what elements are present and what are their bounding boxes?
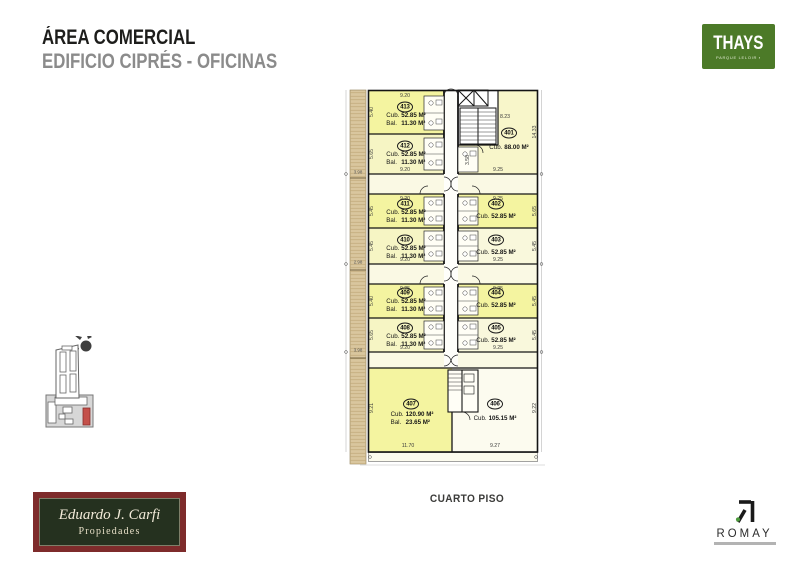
unit-412-height-dim: 5.65 [369, 149, 375, 159]
unit-409-width-dim: 9.25 [400, 286, 410, 292]
unit-404-height-dim: 5.45 [532, 296, 538, 306]
unit-412-number: 412 [397, 141, 413, 152]
unit-401-width-dim2: 9.25 [493, 167, 503, 173]
flyer-canvas: ÁREA COMERCIAL EDIFICIO CIPRÉS - OFICINA… [0, 0, 800, 566]
plan-extra-dim-0: 3.58 [465, 155, 471, 165]
unit-406-height-dim: 9.22 [532, 403, 538, 413]
unit-401-areas: Cub.88.00 M² [489, 144, 528, 152]
romay-r-icon [731, 497, 759, 525]
unit-408-width-dim: 9.20 [400, 345, 410, 351]
romay-logo-name: ROMAY [717, 526, 773, 540]
unit-411-width-dim: 9.20 [400, 196, 410, 202]
unit-403-width-dim: 9.25 [493, 257, 503, 263]
unit-406-number: 406 [487, 399, 503, 410]
cipres-building-highlight [83, 408, 90, 425]
unit-407-height-dim: 9.21 [369, 403, 375, 413]
romay-logo-tagline-bar [714, 542, 776, 545]
romay-logo: ROMAY [703, 497, 787, 545]
unit-409-height-dim: 5.40 [369, 296, 375, 306]
unit-405-width-dim: 9.25 [493, 345, 503, 351]
carfi-logo-subtitle: Propiedades [78, 526, 140, 537]
carfi-logo: Eduardo J. Carfi Propiedades [33, 492, 186, 552]
floor-plan-drawing [0, 0, 800, 566]
unit-401-height-dim: 14.33 [532, 126, 538, 139]
floor-label: CUARTO PISO [430, 493, 504, 505]
unit-409-areas: Cub.52.85 M²Bal.11.30 M² [386, 298, 425, 313]
unit-412-areas: Cub.52.85 M²Bal.11.30 M² [386, 151, 425, 166]
unit-406-width-dim: 9.27 [490, 443, 500, 449]
unit-408-height-dim: 5.65 [369, 330, 375, 340]
unit-408-number: 408 [397, 323, 413, 334]
unit-406-areas: Cub.105.15 M² [474, 415, 517, 423]
plan-extra-dim-2: 2.98 [354, 260, 363, 265]
unit-405-height-dim: 5.45 [532, 330, 538, 340]
unit-402-areas: Cub.52.85 M² [476, 213, 515, 221]
unit-410-height-dim: 5.45 [369, 241, 375, 251]
unit-404-areas: Cub.52.85 M² [476, 302, 515, 310]
carfi-logo-name: Eduardo J. Carfi [59, 507, 161, 524]
unit-403-number: 403 [488, 235, 504, 246]
unit-407-number: 407 [403, 399, 419, 410]
romay-green-dot-icon [736, 517, 740, 521]
unit-404-width-dim: 9.25 [493, 286, 503, 292]
unit-410-width-dim: 9.20 [400, 257, 410, 263]
unit-402-height-dim: 5.65 [532, 206, 538, 216]
unit-413-height-dim: 5.40 [369, 107, 375, 117]
unit-407-areas: Cub.120.90 M²Bal.23.65 M² [391, 411, 434, 426]
unit-407-width-dim: 11.70 [402, 443, 415, 449]
unit-411-areas: Cub.52.85 M²Bal.11.30 M² [386, 209, 425, 224]
unit-405-number: 405 [488, 323, 504, 334]
unit-413-number: 413 [397, 102, 413, 113]
unit-405-areas: Cub.52.85 M² [476, 337, 515, 345]
unit-401-number: 401 [501, 128, 517, 139]
unit-412-width-dim: 9.20 [400, 167, 410, 173]
unit-403-height-dim: 5.45 [532, 241, 538, 251]
unit-413-areas: Cub.52.85 M²Bal.11.30 M² [386, 112, 425, 127]
unit-403-areas: Cub.52.85 M² [476, 249, 515, 257]
unit-401-width-dim: 8.23 [500, 114, 510, 120]
unit-413-width-dim: 9.20 [400, 93, 410, 99]
site-plan-map [30, 336, 115, 466]
unit-410-number: 410 [397, 235, 413, 246]
unit-402-width-dim: 9.25 [493, 196, 503, 202]
plan-extra-dim-1: 3.98 [354, 170, 363, 175]
unit-411-height-dim: 5.45 [369, 206, 375, 216]
plan-extra-dim-3: 3.98 [354, 348, 363, 353]
